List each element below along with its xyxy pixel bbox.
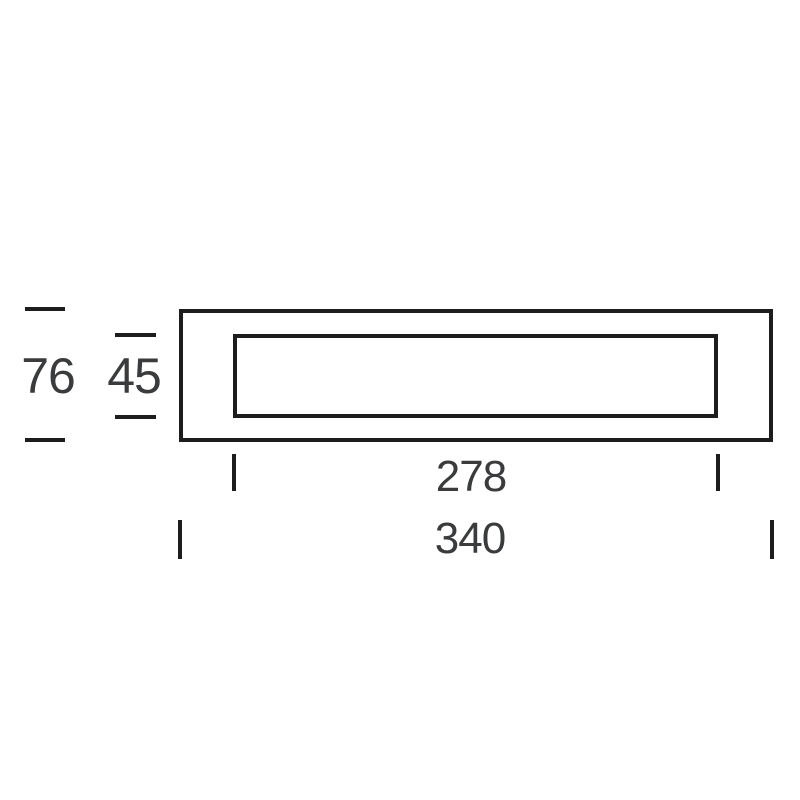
inner-width-right-tick: [716, 454, 720, 491]
overall-width-left-tick: [178, 520, 182, 559]
inner-slot-outline: [233, 334, 718, 418]
technical-drawing-canvas: 76 45 278 340: [0, 0, 800, 800]
overall-height-bottom-tick: [25, 438, 65, 442]
inner-height-bottom-tick: [115, 415, 156, 419]
inner-width-left-tick: [232, 454, 236, 491]
overall-height-top-tick: [25, 307, 65, 311]
overall-width-dimension-label: 340: [435, 517, 505, 561]
overall-width-right-tick: [770, 520, 774, 559]
overall-height-dimension-label: 76: [21, 351, 75, 401]
inner-width-dimension-label: 278: [436, 455, 506, 499]
inner-height-top-tick: [115, 333, 156, 337]
inner-height-dimension-label: 45: [107, 351, 161, 401]
